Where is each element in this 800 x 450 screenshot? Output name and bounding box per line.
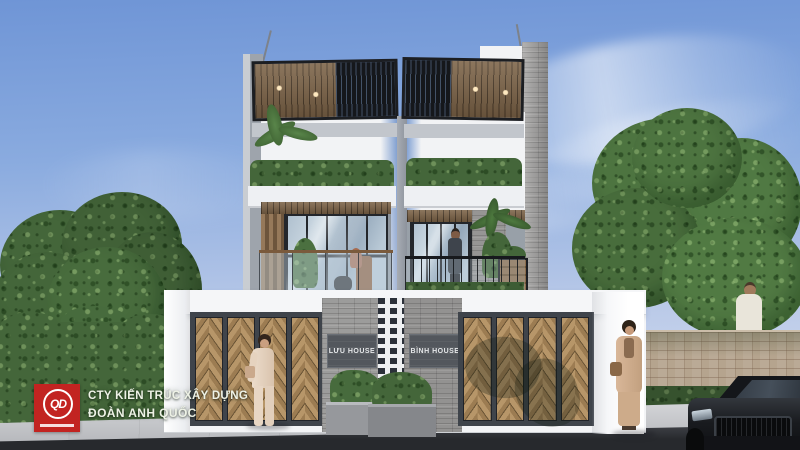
gate-panel [291, 317, 319, 421]
right-house-fascia [404, 124, 524, 138]
name-plate-text: LƯU HOUSE [329, 348, 375, 355]
name-plate-binh-house: BÌNH HOUSE [409, 334, 461, 368]
woman-trousers [254, 386, 263, 426]
company-name-line1: CTY KIẾN TRÚC XÂY DỰNG [88, 390, 248, 402]
woman-skirt [618, 392, 640, 426]
logo-subtext-bar [40, 424, 74, 427]
car-wheel-arch [686, 428, 704, 450]
name-plate-text: BÌNH HOUSE [411, 348, 460, 355]
woman-left [244, 334, 290, 430]
person-shadow [612, 430, 656, 438]
handbag [610, 362, 622, 376]
pergola-black-slats [336, 62, 396, 117]
woman-feet [622, 426, 636, 430]
right-planter-ledge [404, 186, 524, 208]
pergola-black-slats [405, 60, 452, 117]
stone-planter [368, 404, 436, 437]
name-plate-luu-house: LƯU HOUSE [327, 334, 377, 368]
woman-right [608, 320, 656, 438]
woman-scarf [624, 338, 634, 358]
company-name-line2: ĐOÀN ANH QUỐC [88, 406, 197, 420]
car-bumper [690, 436, 800, 450]
woman-face [260, 339, 269, 348]
logo-monogram: QD [50, 397, 66, 411]
gate-panel [195, 317, 223, 421]
woman-trousers [265, 386, 274, 426]
tree-canopy [632, 108, 742, 208]
pergola-wood-slats [451, 61, 522, 118]
architect-logo: QD [34, 384, 80, 432]
car [686, 376, 800, 450]
logo-ring: QD [43, 389, 73, 419]
left-balcony-ceiling [261, 202, 391, 214]
tree-canopy [662, 218, 800, 338]
woman-face [625, 326, 634, 335]
handbag [245, 366, 255, 378]
right-house-pergola [401, 57, 524, 121]
architectural-render: LƯU HOUSE BÌNH HOUSE [0, 0, 800, 450]
